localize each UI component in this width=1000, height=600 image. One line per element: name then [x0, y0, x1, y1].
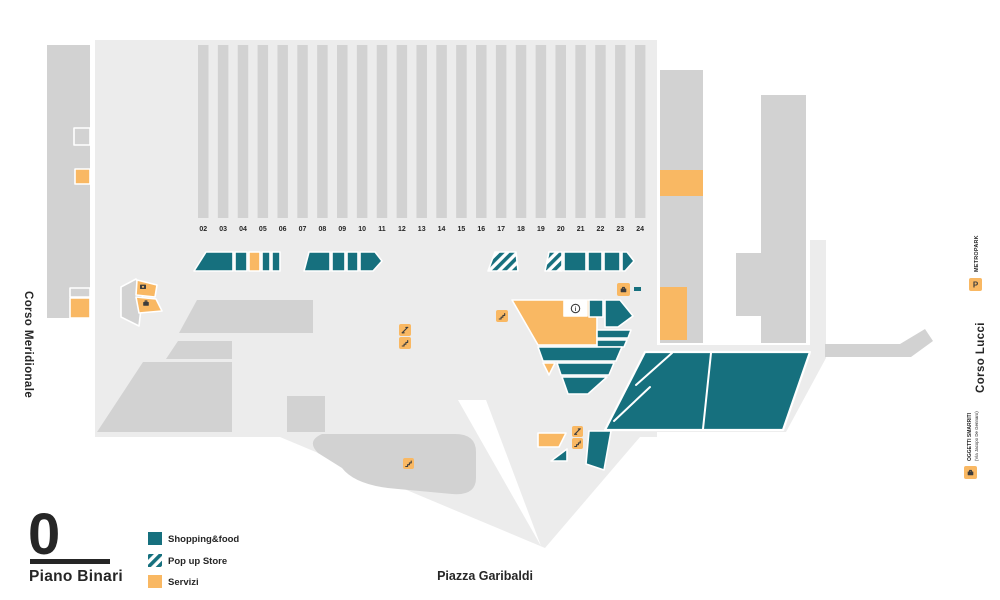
track-number: 07 [299, 226, 307, 233]
service-unit [249, 252, 260, 271]
track-number: 16 [477, 226, 485, 233]
stairs-pictogram [403, 458, 414, 469]
track-number: 15 [458, 226, 466, 233]
shop-unit [235, 252, 247, 271]
track-stripe [595, 45, 606, 218]
track-number: 08 [319, 226, 327, 233]
luggage-pictogram [964, 466, 977, 479]
floor-name: Piano Binari [29, 568, 123, 585]
legend-label-services: Servizi [168, 577, 199, 588]
shop-unit [304, 252, 330, 271]
shop-unit [604, 252, 620, 271]
track-number: 20 [557, 226, 565, 233]
west-building-room [74, 128, 90, 145]
shop-unit [597, 330, 631, 338]
street-label-corso-lucci: Corso Lucci [975, 322, 987, 393]
legend-swatch-popup [148, 554, 162, 567]
info-point: i [564, 301, 587, 316]
track-number: 21 [577, 226, 585, 233]
track-stripe [337, 45, 348, 218]
track-number: 11 [378, 226, 386, 233]
photo-icon [140, 285, 146, 289]
floor-title: 0 Piano Binari [28, 502, 123, 585]
track-stripe [555, 45, 566, 218]
track-stripes [198, 45, 645, 218]
lost-and-found-label: OGGETTI SMARRITI [967, 412, 973, 461]
track-number: 19 [537, 226, 545, 233]
track-number: 04 [239, 226, 247, 233]
service-area-west-2 [70, 298, 90, 318]
stairs-pictogram [399, 337, 411, 349]
lost-and-found-address: (Via Jacopo De Gennaro) [974, 411, 979, 461]
shop-unit [557, 363, 614, 375]
track-stripe [516, 45, 527, 218]
service-area-east-2 [660, 287, 687, 340]
legend: Shopping&food Pop up Store Servizi [148, 532, 239, 588]
shop-unit [272, 252, 280, 271]
track-stripe [416, 45, 427, 218]
shop-unit [564, 252, 586, 271]
track-stripe [277, 45, 288, 218]
legend-swatch-shopping [148, 532, 162, 545]
track-stripe [496, 45, 507, 218]
track-stripe [575, 45, 586, 218]
track-number: 03 [219, 226, 227, 233]
track-stripe [635, 45, 646, 218]
legend-swatch-services [148, 575, 162, 588]
shop-unit [597, 340, 627, 347]
title-underline [30, 559, 110, 564]
street-label-piazza-garibaldi: Piazza Garibaldi [437, 569, 533, 583]
central-structure-a [179, 300, 313, 333]
track-number: 18 [517, 226, 525, 233]
escalator-pictogram [399, 324, 411, 336]
escalator-pictogram [572, 426, 583, 437]
floor-number: 0 [28, 502, 60, 567]
shop-unit [347, 252, 358, 271]
lost-and-found: OGGETTI SMARRITI (Via Jacopo De Gennaro) [964, 411, 979, 479]
track-stripe [377, 45, 388, 218]
track-number: 22 [597, 226, 605, 233]
track-stripe [536, 45, 547, 218]
track-number: 17 [497, 226, 505, 233]
shop-unit [589, 300, 603, 317]
track-stripe [258, 45, 269, 218]
shop-marker [634, 287, 641, 291]
metropark-label: METROPARK [974, 235, 980, 272]
track-stripe [456, 45, 467, 218]
parking-icon-letter: P [973, 281, 979, 290]
service-area-west-1 [75, 169, 90, 184]
track-number: 24 [636, 226, 644, 233]
track-stripe [218, 45, 229, 218]
shop-unit [538, 347, 622, 361]
shop-unit [332, 252, 345, 271]
track-stripe [198, 45, 209, 218]
track-number: 13 [418, 226, 426, 233]
track-number: 12 [398, 226, 406, 233]
service-area-east-1 [660, 170, 703, 196]
track-number: 06 [279, 226, 287, 233]
shop-unit [262, 252, 270, 271]
track-stripe [357, 45, 368, 218]
west-building-room-2 [70, 288, 90, 297]
luggage-pictogram [617, 283, 630, 296]
legend-label-popup: Pop up Store [168, 556, 227, 567]
track-number: 10 [358, 226, 366, 233]
track-stripe [297, 45, 308, 218]
central-structure-d [287, 396, 325, 432]
east-walkway [825, 329, 933, 357]
track-number: 09 [338, 226, 346, 233]
track-stripe [238, 45, 249, 218]
shop-unit [588, 252, 602, 271]
metropark: METROPARK P [969, 235, 982, 291]
track-numbers: 0203040506070809101112131415161718192021… [199, 226, 644, 233]
stairs-pictogram [572, 438, 583, 449]
track-number: 02 [199, 226, 207, 233]
track-stripe [615, 45, 626, 218]
station-map: 0203040506070809101112131415161718192021… [0, 0, 1000, 600]
track-number: 05 [259, 226, 267, 233]
south-structure [313, 434, 476, 494]
track-number: 23 [616, 226, 624, 233]
track-stripe [317, 45, 328, 218]
track-stripe [476, 45, 487, 218]
stairs-pictogram [496, 310, 508, 322]
legend-label-shopping: Shopping&food [168, 534, 239, 545]
east-building-2 [736, 95, 806, 343]
track-number: 14 [438, 226, 446, 233]
track-stripe [397, 45, 408, 218]
track-stripe [436, 45, 447, 218]
street-label-corso-meridionale: Corso Meridionale [22, 291, 34, 398]
